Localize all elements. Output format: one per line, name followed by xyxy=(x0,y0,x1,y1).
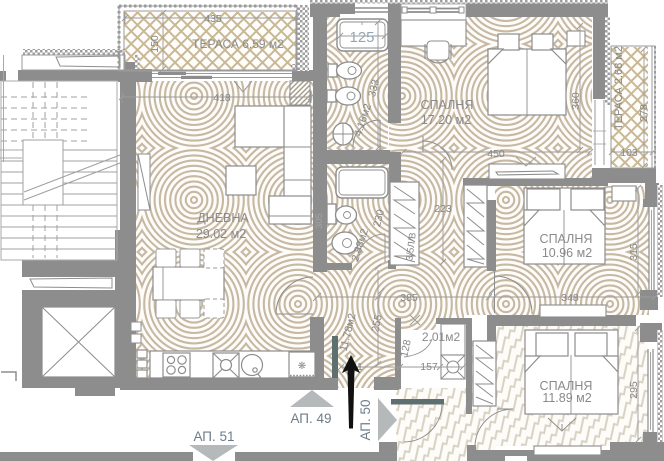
svg-text:348: 348 xyxy=(561,292,579,304)
svg-text:450: 450 xyxy=(487,148,505,160)
svg-text:ТЕРАСА 2.68 м2: ТЕРАСА 2.68 м2 xyxy=(613,46,625,130)
svg-text:СПАЛНЯ: СПАЛНЯ xyxy=(540,232,593,246)
svg-text:АП. 51: АП. 51 xyxy=(193,429,234,444)
svg-text:223: 223 xyxy=(434,203,452,215)
svg-text:ДНЕВНА: ДНЕВНА xyxy=(197,211,249,225)
svg-text:❋: ❋ xyxy=(298,361,306,372)
svg-text:10.96 м2: 10.96 м2 xyxy=(542,246,592,260)
svg-text:АП. 50: АП. 50 xyxy=(358,399,373,440)
svg-text:315: 315 xyxy=(628,243,640,261)
svg-text:125: 125 xyxy=(349,29,374,46)
svg-text:435: 435 xyxy=(204,13,222,25)
svg-text:ТЕРАСА 6.59 м2: ТЕРАСА 6.59 м2 xyxy=(192,37,284,51)
svg-text:278: 278 xyxy=(638,104,650,122)
svg-text:157: 157 xyxy=(420,361,438,373)
svg-text:150: 150 xyxy=(149,35,161,53)
svg-text:385: 385 xyxy=(400,292,418,304)
svg-text:СПАЛНЯ: СПАЛНЯ xyxy=(421,98,474,112)
svg-text:360: 360 xyxy=(570,92,582,110)
svg-text:418: 418 xyxy=(213,92,231,104)
svg-text:11.89 м2: 11.89 м2 xyxy=(542,391,591,405)
svg-text:305: 305 xyxy=(314,213,325,229)
svg-text:2.01м2: 2.01м2 xyxy=(422,330,461,344)
svg-text:103: 103 xyxy=(620,147,638,159)
svg-text:29.02 м2: 29.02 м2 xyxy=(196,227,246,241)
svg-text:АП. 49: АП. 49 xyxy=(290,411,331,426)
svg-text:17.20 м2: 17.20 м2 xyxy=(421,113,471,127)
svg-text:295: 295 xyxy=(628,381,640,399)
